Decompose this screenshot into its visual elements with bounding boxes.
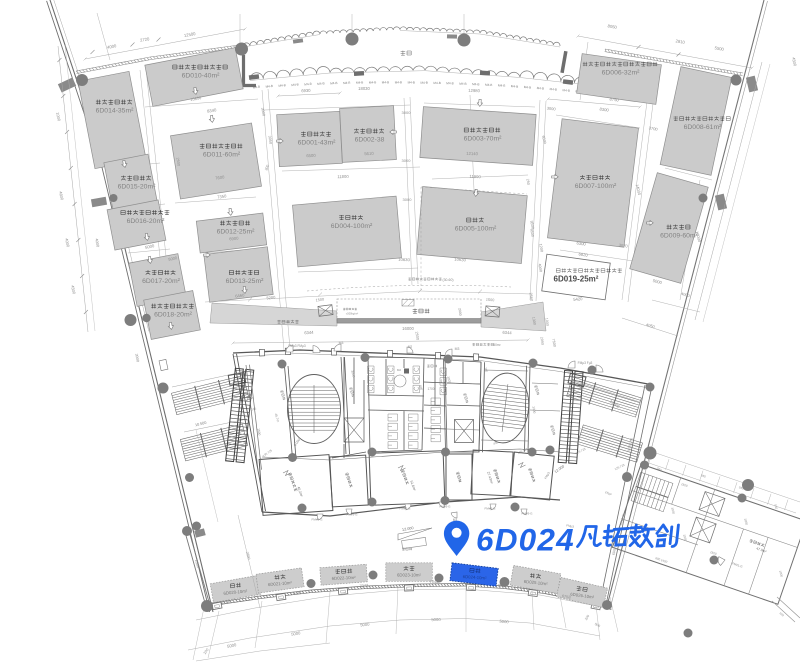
svg-text:5420: 5420 [573, 296, 583, 302]
svg-text:6D017-20m²: 6D017-20m² [142, 278, 181, 285]
svg-text:5000: 5000 [431, 617, 441, 622]
svg-text:FM#3-G: FM#3-G [311, 518, 323, 522]
svg-text:FM#3-G: FM#3-G [521, 512, 533, 516]
svg-text:6D005-100m²: 6D005-100m² [455, 225, 497, 232]
svg-text:M4-B: M4-B [549, 87, 557, 92]
svg-text:6500: 6500 [306, 153, 316, 158]
svg-text:FM#3-G: FM#3-G [399, 507, 411, 511]
svg-text:M2: M2 [408, 345, 413, 349]
svg-text:M4-B: M4-B [356, 80, 364, 84]
svg-text:(30-60): (30-60) [443, 278, 454, 282]
svg-text:FM#3-G: FM#3-G [346, 513, 358, 517]
svg-text:M4-B: M4-B [330, 81, 338, 86]
svg-text:6D001-43m²: 6D001-43m² [298, 139, 337, 146]
svg-text:FM#3-G: FM#3-G [439, 505, 451, 509]
svg-text:M4-B: M4-B [382, 80, 390, 84]
svg-text:6D024: 6D024 [476, 522, 575, 558]
svg-text:50m²: 50m² [493, 343, 500, 347]
svg-text:M4-B: M4-B [343, 81, 351, 85]
svg-text:M3: M3 [455, 347, 460, 351]
svg-text:M4-B: M4-B [459, 82, 467, 86]
svg-text:1500: 1500 [486, 298, 495, 303]
svg-text:M3: M3 [339, 341, 344, 345]
svg-text:11800: 11800 [337, 174, 349, 179]
svg-text:M4-B: M4-B [369, 80, 377, 84]
svg-text:10630: 10630 [454, 257, 467, 263]
svg-text:6D007-100m²: 6D007-100m² [575, 183, 617, 190]
svg-text:6D012-25m²: 6D012-25m² [217, 228, 256, 235]
svg-text:M4-B: M4-B [304, 82, 312, 87]
svg-text:6344: 6344 [502, 330, 512, 336]
svg-text:6D023-10m²: 6D023-10m² [397, 573, 421, 578]
svg-text:6D010-40m²: 6D010-40m² [182, 72, 221, 79]
svg-text:10630: 10630 [398, 257, 410, 262]
svg-text:M4-B: M4-B [511, 84, 519, 88]
svg-text:3000: 3000 [402, 158, 412, 163]
svg-text:6D014-35m²: 6D014-35m² [96, 107, 135, 114]
svg-text:11800: 11800 [469, 174, 481, 179]
svg-text:M4-B: M4-B [485, 83, 493, 87]
svg-text:5200: 5200 [266, 295, 276, 301]
svg-text:6D003-70m²: 6D003-70m² [464, 135, 503, 142]
svg-text:7042: 7042 [359, 583, 369, 589]
svg-text:6930: 6930 [301, 88, 311, 94]
svg-text:M4-B: M4-B [524, 85, 532, 90]
svg-text:6D016-20m²: 6D016-20m² [127, 218, 166, 225]
svg-text:6D013-25m²: 6D013-25m² [226, 278, 265, 285]
svg-text:M2: M2 [397, 368, 401, 372]
svg-text:18030: 18030 [358, 86, 370, 91]
svg-text:6D018-20m²: 6D018-20m² [154, 311, 193, 318]
svg-text:M4-B: M4-B [278, 83, 286, 88]
svg-text:M4-B: M4-B [408, 80, 415, 84]
svg-text:6D009-60m²: 6D009-60m² [660, 232, 699, 239]
svg-text:M4-B: M4-B [446, 81, 453, 85]
svg-text:M4-B: M4-B [562, 88, 570, 93]
svg-text:6D008-61m²: 6D008-61m² [684, 124, 723, 131]
svg-text:16000: 16000 [402, 326, 414, 331]
svg-text:M4-B: M4-B [537, 86, 545, 91]
svg-text:M4-B: M4-B [317, 81, 325, 86]
svg-text:6D006-32m²: 6D006-32m² [602, 69, 641, 76]
svg-text:M4-B: M4-B [420, 81, 427, 85]
svg-text:6D011-60m²: 6D011-60m² [203, 151, 241, 158]
svg-text:12980: 12980 [468, 88, 481, 94]
svg-text:FMµ3 Fµ3: FMµ3 Fµ3 [578, 361, 593, 365]
svg-text:M4-B: M4-B [472, 82, 480, 86]
svg-text:6D019-25m²: 6D019-25m² [554, 275, 599, 284]
svg-text:FMµ3 FMµ3: FMµ3 FMµ3 [288, 344, 306, 348]
svg-text:1700: 1700 [427, 387, 434, 391]
svg-text:6D015-20m²: 6D015-20m² [118, 183, 157, 190]
svg-text:5000: 5000 [499, 619, 509, 625]
svg-text:M4-B: M4-B [291, 82, 299, 87]
svg-text:6D002-38: 6D002-38 [355, 136, 385, 143]
svg-text:6D004-100m²: 6D004-100m² [331, 223, 373, 230]
svg-text:5000: 5000 [360, 622, 370, 628]
svg-text:M4-B: M4-B [395, 80, 403, 84]
svg-text:FM#3-G: FM#3-G [484, 507, 496, 511]
svg-text:≤500kg/m²: ≤500kg/m² [346, 312, 358, 316]
svg-text:3000: 3000 [403, 197, 413, 202]
svg-text:6344: 6344 [304, 330, 314, 336]
svg-text:6900: 6900 [229, 236, 239, 242]
svg-text:5610: 5610 [364, 151, 374, 156]
svg-text:12140: 12140 [466, 151, 479, 157]
svg-text:3000: 3000 [402, 110, 412, 115]
svg-text:M4-B: M4-B [498, 83, 506, 87]
svg-text:M4-B: M4-B [433, 81, 440, 85]
